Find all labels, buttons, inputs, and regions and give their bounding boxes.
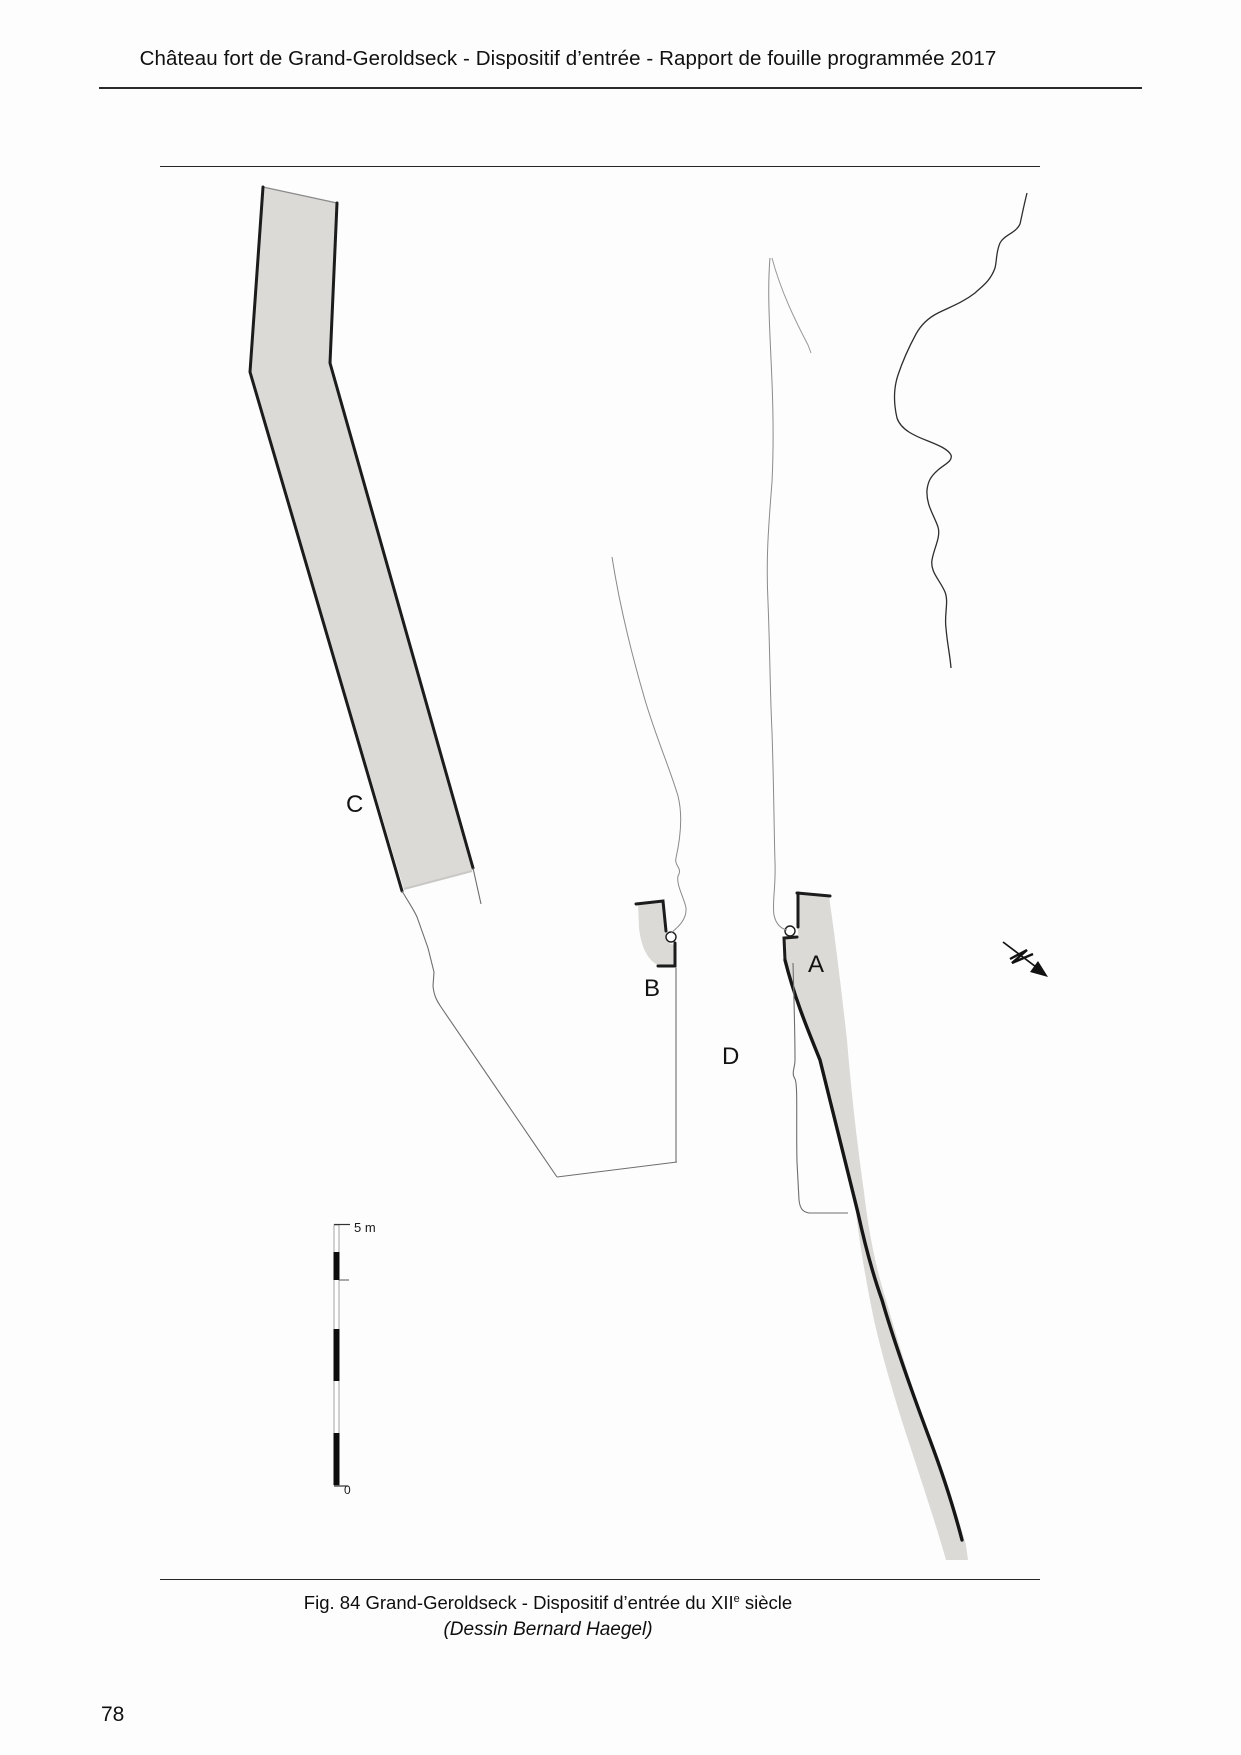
north-arrow-icon [1003, 942, 1048, 977]
report-page: Château fort de Grand-Geroldseck - Dispo… [0, 0, 1241, 1755]
scale-bar-segment-black [334, 1329, 340, 1381]
path-line-west [612, 557, 686, 933]
plan-drawing: 5 m 0 C B D A [0, 0, 1241, 1755]
figure-caption-suffix: siècle [740, 1592, 792, 1613]
scale-bar-segment-black [334, 1433, 340, 1485]
page-number: 78 [101, 1703, 124, 1727]
label-d: D [722, 1043, 739, 1070]
scale-bar-top-label: 5 m [354, 1220, 376, 1235]
scale-bar: 5 m 0 [334, 1220, 376, 1497]
scale-bar-bottom-label: 0 [344, 1483, 351, 1497]
wall-c-band [250, 187, 473, 890]
figure-caption-credit: (Dessin Bernard Haegel) [58, 1619, 1038, 1641]
label-a: A [808, 951, 824, 978]
wall-a-band [784, 894, 968, 1560]
courtyard-outline-south [557, 1162, 677, 1177]
figure-caption: Fig. 84 Grand-Geroldseck - Dispositif d’… [58, 1592, 1038, 1614]
door-pivot-b [666, 932, 676, 942]
courtyard-outline-west [402, 891, 557, 1177]
door-pivot-a [785, 926, 795, 936]
wall-c-right-thin-continuation [473, 868, 481, 904]
contour-line-east [895, 193, 1028, 668]
label-b: B [644, 975, 660, 1002]
path-line-east [767, 258, 787, 930]
figure-caption-text: Fig. 84 Grand-Geroldseck - Dispositif d’… [304, 1592, 734, 1613]
figure-caption-credit-text: (Dessin Bernard Haegel) [443, 1619, 652, 1640]
wall-a-long-outline [785, 960, 962, 1540]
scale-bar-segment-black [334, 1252, 340, 1280]
label-c: C [346, 791, 363, 818]
path-branch-line [772, 258, 811, 353]
